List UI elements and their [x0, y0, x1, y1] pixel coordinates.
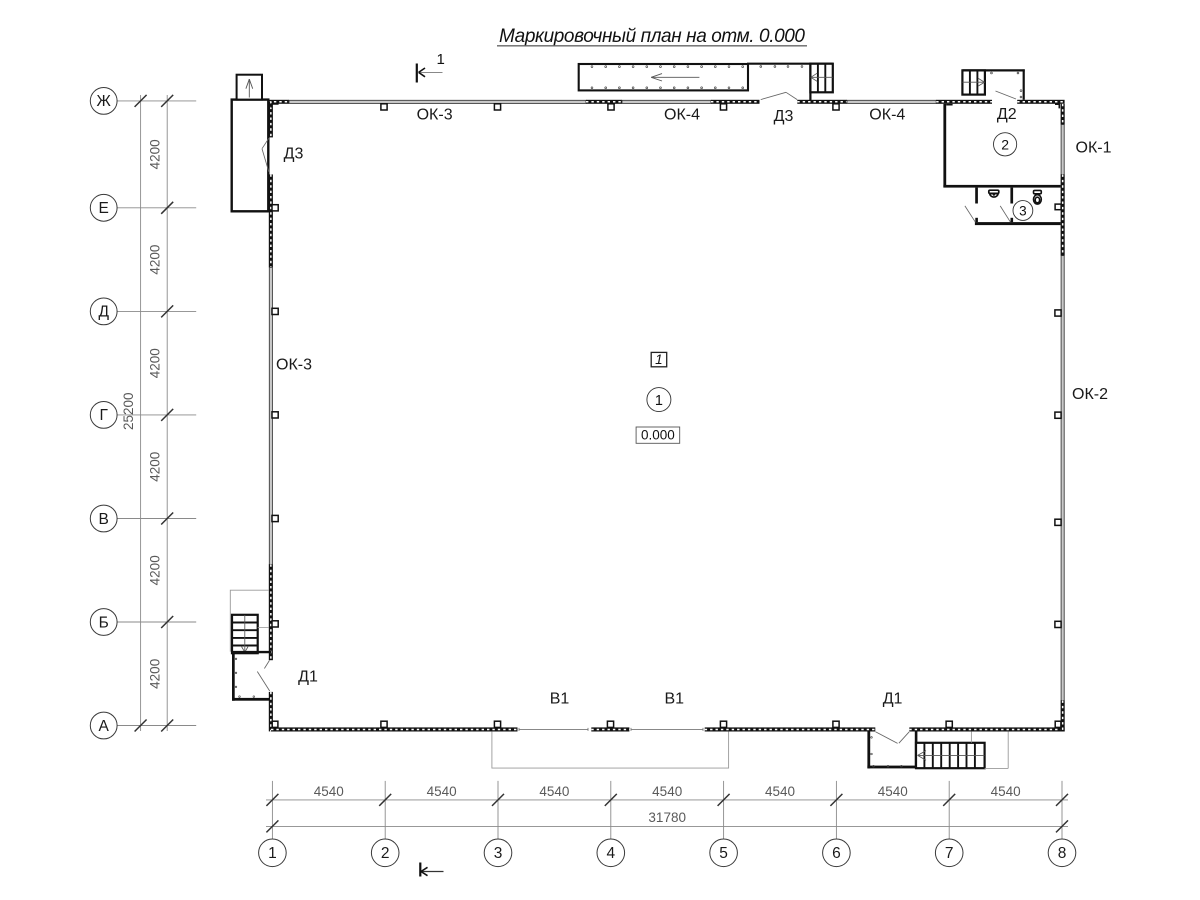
- svg-text:4200: 4200: [148, 555, 163, 585]
- svg-text:4200: 4200: [148, 452, 163, 482]
- svg-text:ОК-4: ОК-4: [664, 107, 700, 124]
- svg-text:А: А: [99, 718, 110, 735]
- svg-text:В: В: [99, 511, 109, 528]
- svg-text:В1: В1: [550, 690, 570, 707]
- svg-text:1: 1: [437, 51, 445, 68]
- svg-text:Д1: Д1: [883, 690, 903, 707]
- svg-text:4540: 4540: [539, 784, 569, 799]
- svg-text:8: 8: [1058, 845, 1067, 862]
- svg-text:4200: 4200: [148, 139, 163, 169]
- svg-text:Маркировочный план на отм. 0.0: Маркировочный план на отм. 0.000: [499, 26, 805, 47]
- svg-text:1: 1: [655, 393, 663, 409]
- svg-text:4540: 4540: [991, 784, 1021, 799]
- svg-text:3: 3: [494, 845, 503, 862]
- svg-text:4200: 4200: [148, 659, 163, 689]
- svg-text:4540: 4540: [765, 784, 795, 799]
- svg-text:4540: 4540: [427, 784, 457, 799]
- svg-text:4200: 4200: [148, 348, 163, 378]
- svg-text:7: 7: [945, 845, 954, 862]
- svg-text:1: 1: [655, 352, 663, 367]
- svg-text:4: 4: [606, 845, 615, 862]
- svg-text:ОК-1: ОК-1: [1076, 140, 1112, 157]
- svg-text:Д2: Д2: [997, 106, 1017, 123]
- svg-text:ОК-3: ОК-3: [417, 107, 453, 124]
- svg-text:Ж: Ж: [97, 93, 112, 110]
- svg-text:ОК-4: ОК-4: [869, 107, 905, 124]
- svg-text:4540: 4540: [652, 784, 682, 799]
- svg-text:Е: Е: [99, 200, 109, 217]
- svg-text:0.000: 0.000: [641, 428, 675, 443]
- svg-text:Д3: Д3: [284, 146, 304, 163]
- svg-text:Д3: Д3: [774, 108, 794, 125]
- svg-text:Д1: Д1: [298, 669, 318, 686]
- svg-text:Б: Б: [99, 614, 109, 631]
- svg-text:25200: 25200: [121, 392, 136, 430]
- svg-text:В1: В1: [665, 690, 685, 707]
- svg-text:2: 2: [1001, 136, 1009, 152]
- svg-text:31780: 31780: [648, 810, 686, 825]
- svg-text:4200: 4200: [148, 245, 163, 275]
- svg-text:Г: Г: [99, 407, 108, 424]
- svg-text:3: 3: [1019, 203, 1027, 218]
- svg-text:ОК-2: ОК-2: [1072, 386, 1108, 403]
- svg-text:Д: Д: [98, 304, 109, 321]
- svg-text:2: 2: [381, 845, 390, 862]
- svg-text:4540: 4540: [878, 784, 908, 799]
- svg-text:5: 5: [719, 845, 728, 862]
- svg-text:4540: 4540: [314, 784, 344, 799]
- svg-text:6: 6: [832, 845, 841, 862]
- svg-text:1: 1: [268, 845, 277, 862]
- svg-text:ОК-3: ОК-3: [276, 357, 312, 374]
